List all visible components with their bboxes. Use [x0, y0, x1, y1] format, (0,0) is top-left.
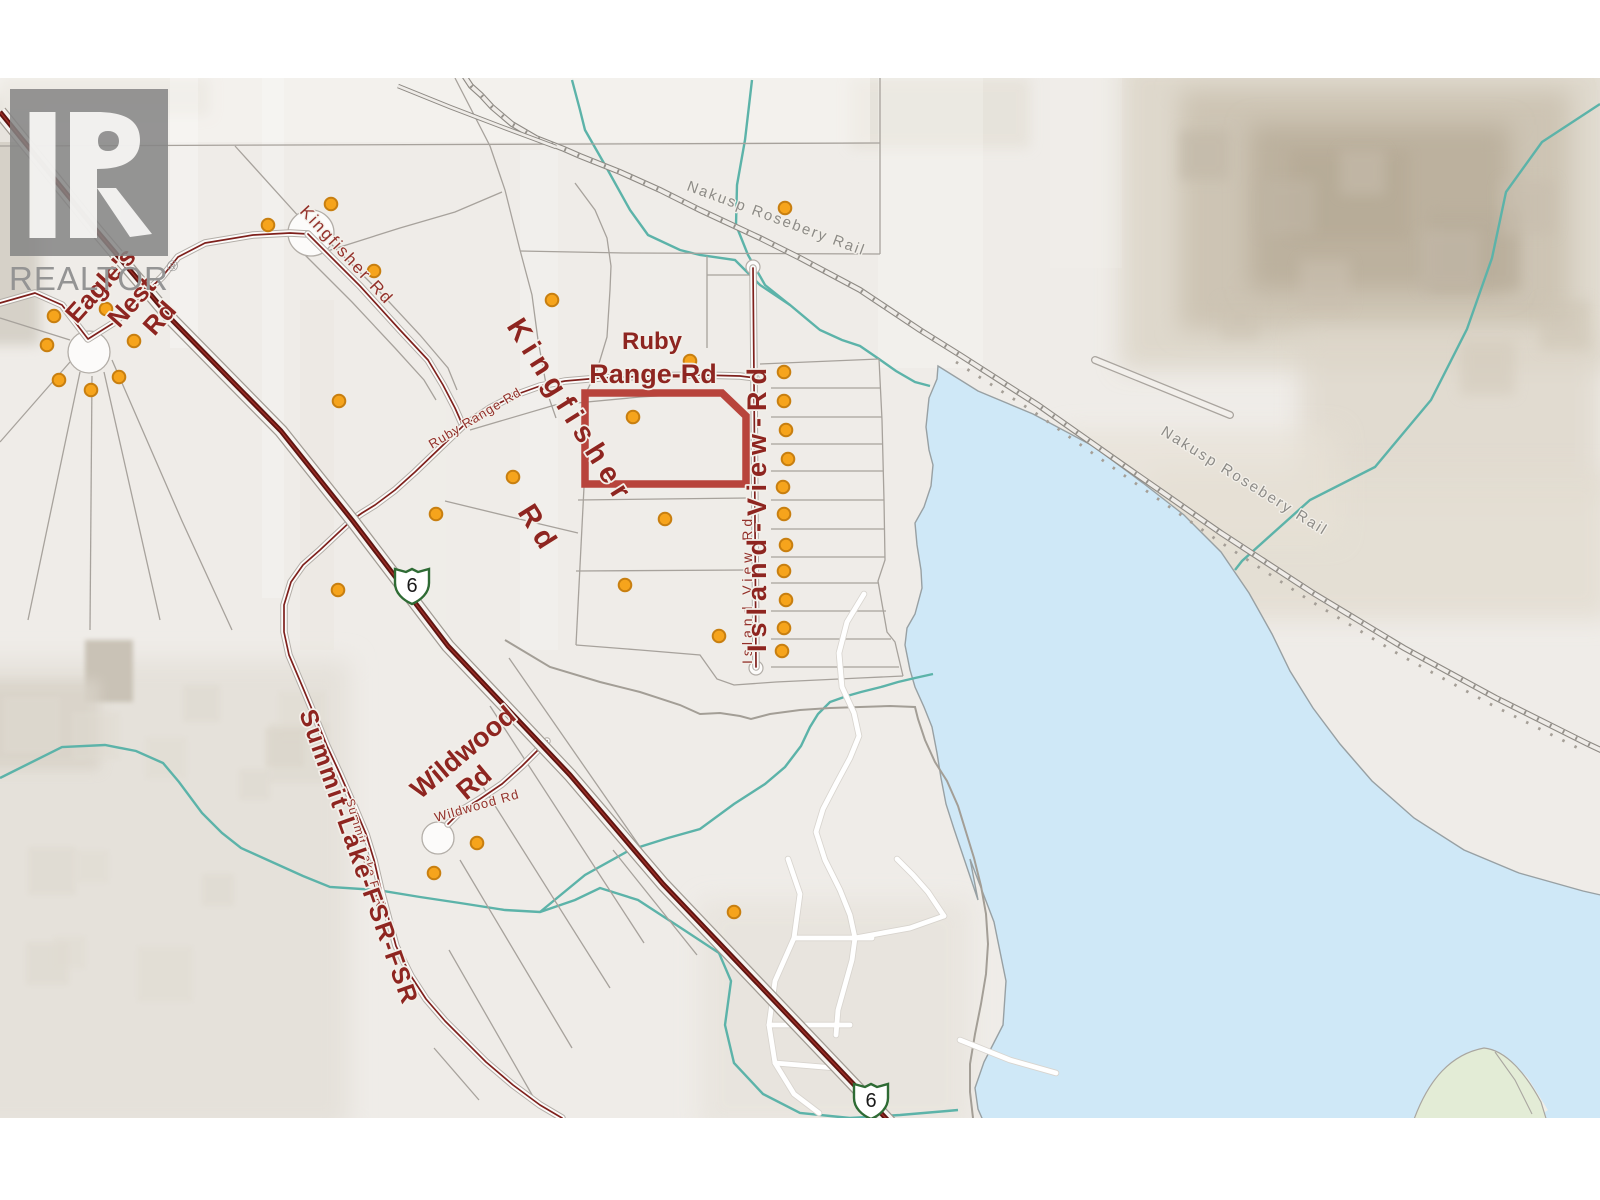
svg-text:Range-Rd: Range-Rd [589, 359, 717, 389]
svg-text:Ruby: Ruby [622, 328, 683, 355]
svg-text:®: ® [167, 258, 178, 275]
svg-text:6: 6 [865, 1090, 876, 1112]
svg-text:REALTOR: REALTOR [9, 260, 169, 297]
svg-text:6: 6 [406, 575, 417, 597]
svg-text:Island-View-Rd: Island-View-Rd [742, 361, 772, 652]
